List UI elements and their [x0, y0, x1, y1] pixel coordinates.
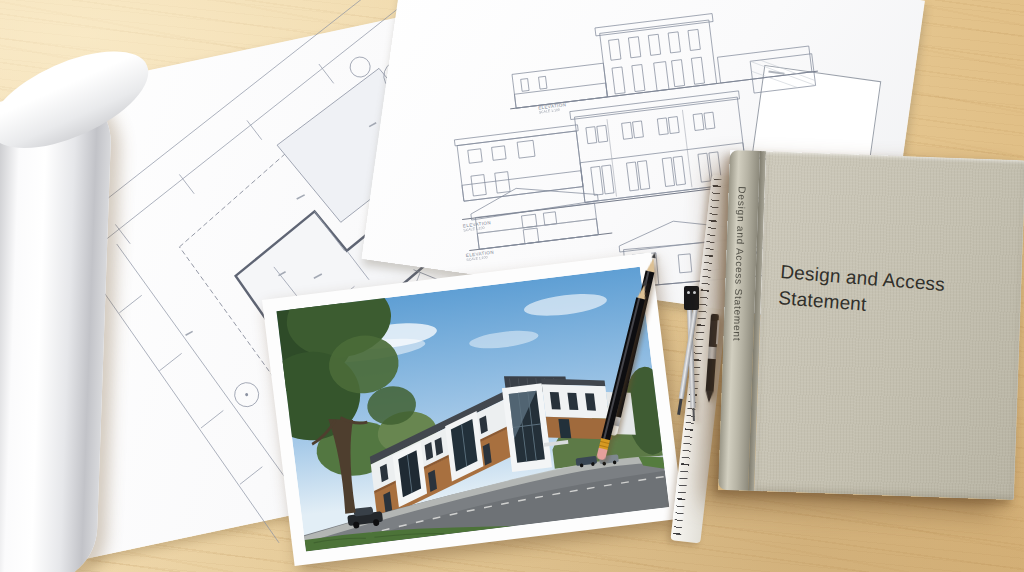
pen-tip	[705, 391, 714, 404]
rolled-paper-edge	[0, 82, 113, 572]
book-cover: Design and Access Statement	[754, 151, 1024, 500]
desk-scene: N	[0, 0, 1024, 572]
compass-lead-holder	[677, 399, 682, 415]
book-cover-title: Design and Access Statement	[777, 259, 1000, 328]
book-spine-title: Design and Access Statement	[726, 186, 747, 486]
design-access-statement-book: Design and Access Statement Design and A…	[718, 150, 1024, 500]
drafting-compass	[666, 286, 726, 426]
compass-hinge	[684, 286, 699, 310]
compass-needle	[692, 408, 694, 421]
